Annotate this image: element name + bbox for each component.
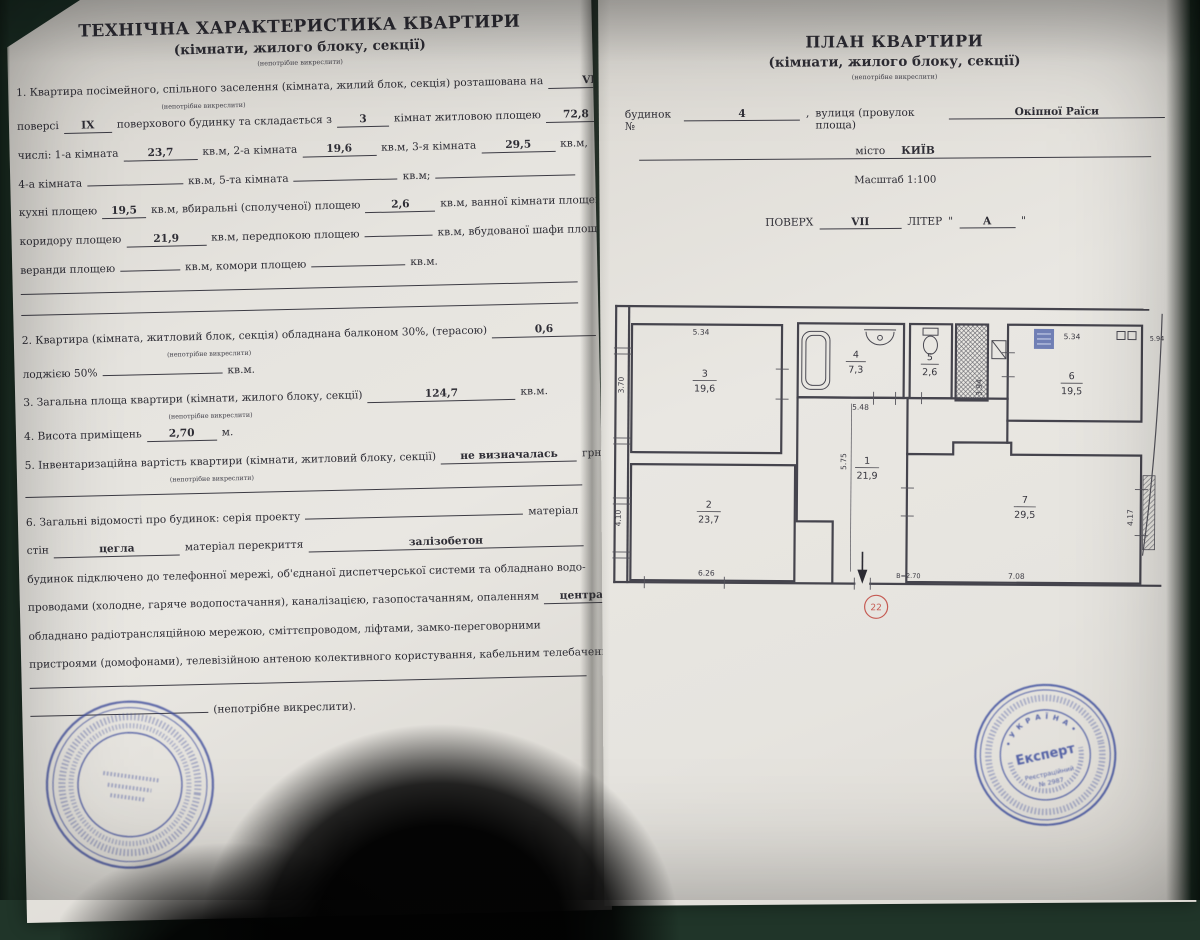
dimension-label: 3.94 [975, 379, 984, 396]
svg-text:29,5: 29,5 [1014, 510, 1035, 521]
form-rule-line [21, 281, 578, 296]
form-text: поверсі [17, 120, 59, 134]
form-value: 2,6 [365, 198, 435, 214]
door-number-badge: 22 [865, 595, 888, 618]
bathtub-icon [802, 331, 830, 389]
form-value [87, 184, 183, 187]
form-line: пристроями (домофонами), телевізійною ан… [29, 647, 586, 673]
vent-box-icon [992, 341, 1006, 359]
form-text: кухні площею [19, 206, 97, 221]
entrance-arrow-icon [857, 552, 867, 584]
form-text: кв.м. [410, 256, 438, 270]
svg-text:19,5: 19,5 [1061, 386, 1082, 397]
form-line: 6. Загальні відомості про будинок: серія… [26, 505, 583, 531]
form-value: 19,5 [102, 204, 146, 219]
close-quote: " [1021, 215, 1026, 227]
dimension-label: 3.70 [617, 376, 626, 393]
dimension-label: 4.10 [614, 509, 623, 526]
form-text: коридору площею [19, 234, 121, 249]
city-value: КИЇВ [901, 145, 935, 157]
stove-icon [1117, 331, 1136, 339]
form-text: 4. Висота приміщень [24, 429, 142, 445]
right-page: ПЛАН КВАРТИРИ (кімнати, жилого блоку, се… [598, 0, 1196, 906]
dimension-label: 7.08 [1008, 572, 1025, 581]
walls [614, 306, 1162, 586]
form-text: кв.м; [403, 170, 431, 184]
svg-text:3: 3 [702, 369, 708, 380]
strike-note: (непотрібне викреслити) [599, 71, 1191, 83]
liter-label: ЛІТЕР [907, 216, 942, 228]
form-text: проводами (холодне, гаряче водопостачанн… [28, 591, 539, 616]
svg-text:22: 22 [870, 603, 882, 613]
dimension-label: 5.34 [693, 328, 710, 337]
page-curl-edge [1166, 0, 1200, 900]
form-value: 21,9 [126, 232, 206, 248]
dimension-label: 5.48 [852, 403, 869, 412]
form-text: кв.м, передпокою площею [211, 229, 360, 245]
balcony-hatch [1143, 476, 1156, 550]
street-label: вулиця (провулок площа) [815, 107, 943, 132]
form-line: проводами (холодне, гаряче водопостачанн… [28, 590, 585, 617]
form-value: не визначалась [441, 448, 577, 465]
photo-left-edge [0, 0, 10, 900]
room-label: 52,6 [921, 352, 939, 378]
form-text: числі: 1-а кімната [18, 148, 119, 163]
room-labels: 121,9 223,7 319,6 47,3 52,6 619,5 729,5 [692, 349, 1083, 529]
svg-text:21,9: 21,9 [856, 471, 877, 482]
floor-label: ПОВЕРХ [765, 217, 813, 229]
form-text: кв.м. [227, 364, 255, 378]
form-rule-line [21, 302, 578, 317]
opening-ticks [612, 348, 1149, 592]
form-value [311, 265, 405, 268]
form-value [103, 373, 223, 377]
form-value [294, 179, 398, 182]
form-text: лоджією 50% [23, 368, 98, 383]
svg-text:19,6: 19,6 [694, 384, 715, 395]
form-text: кімнат житловою площею [394, 109, 541, 125]
form-text: 4-а кімната [18, 178, 82, 192]
form-value: залізобетон [308, 533, 583, 553]
form-value [120, 270, 180, 272]
form-value: 23,7 [123, 146, 197, 162]
liter-value: А [959, 215, 1015, 228]
form-text: матеріал [528, 505, 578, 519]
form-text: кв.м, комори площею [185, 259, 307, 275]
form-value: цегла [54, 542, 180, 559]
svg-text:4: 4 [853, 350, 859, 361]
form-line: обладнано радіотрансляційною мережою, см… [28, 619, 585, 645]
form-line: будинок підключено до телефонної мережі,… [27, 562, 584, 588]
form-value: 2,70 [147, 427, 217, 443]
svg-text:5: 5 [927, 352, 933, 363]
city-row: місто КИЇВ [639, 143, 1151, 161]
height-note: В=2.70 [896, 572, 920, 580]
room-label: 47,3 [846, 350, 866, 376]
room-label: 223,7 [697, 500, 721, 526]
form-text: кв.м. [520, 385, 548, 399]
svg-text:23,7: 23,7 [698, 515, 719, 526]
form-value: 124,7 [367, 386, 515, 403]
floor-value: VII [819, 216, 901, 230]
form-text: кв.м, 5-та кімната [188, 173, 289, 188]
hall-dim-line [850, 404, 851, 572]
form-text: обладнано радіотрансляційною мережою, см… [28, 620, 540, 645]
page-fold-shadow [580, 0, 610, 900]
comma: , [806, 108, 809, 120]
form-line: стінцегламатеріал перекриттязалізобетон [26, 533, 583, 560]
room-label: 619,5 [1061, 371, 1083, 397]
form-value: 19,6 [302, 142, 376, 158]
form-text: будинок підключено до телефонної мережі,… [27, 562, 586, 588]
form-value: 29,5 [481, 138, 555, 154]
svg-text:7,3: 7,3 [848, 365, 863, 376]
room-label: 729,5 [1014, 495, 1036, 521]
left-title-block: ТЕХНІЧНА ХАРАКТЕРИСТИКА КВАРТИРИ (кімнат… [7, 10, 593, 74]
form-text: поверхового будинку та складається з [117, 114, 332, 132]
toilet-icon [923, 328, 938, 354]
dimension-label: 5.34 [1064, 332, 1081, 341]
right-title-block: ПЛАН КВАРТИРИ (кімнати, жилого блоку, се… [598, 30, 1190, 83]
plan-subtitle: (кімнати, жилого блоку, секції) [598, 52, 1190, 73]
form-line: кухні площею19,5кв.м, вбиральні (сполуче… [19, 195, 576, 222]
form-text: матеріал перекриття [185, 539, 304, 555]
round-stamp-left [29, 683, 231, 885]
building-number-value: 4 [684, 108, 800, 122]
room-label: 319,6 [693, 369, 717, 395]
form-value: 3 [337, 113, 389, 128]
plan-title: ПЛАН КВАРТИРИ [598, 30, 1190, 54]
svg-text:7: 7 [1022, 495, 1028, 506]
form-lines: 1. Квартира посімейного, спільного засел… [16, 75, 587, 721]
building-number-label: будинок № [625, 108, 678, 132]
svg-text:2: 2 [706, 500, 712, 511]
form-text: кв.м, 2-а кімната [202, 144, 297, 159]
left-page: ТЕХНІЧНА ХАРАКТЕРИСТИКА КВАРТИРИ (кімнат… [6, 0, 612, 923]
form-line: 4-а кімнатакв.м, 5-та кімнатакв.м; [18, 167, 575, 193]
svg-text:2,6: 2,6 [922, 367, 937, 378]
form-line: числі: 1-а кімната23,7кв.м, 2-а кімната1… [18, 138, 575, 165]
photographed-document: { "left_page": { "title": "ТЕХНІЧНА ХАРА… [0, 0, 1200, 900]
form-text: стін [26, 545, 49, 559]
form-line: коридору площею21,9кв.м, передпокою площ… [19, 224, 576, 251]
blue-ink-mark [1034, 329, 1054, 349]
form-value [305, 514, 523, 520]
svg-text:6: 6 [1069, 371, 1075, 382]
street-value: Окіпної Раїси [949, 105, 1165, 120]
form-line: веранди площеюкв.м, комори площеюкв.м. [20, 253, 577, 279]
form-text: 6. Загальні відомості про будинок: серія… [26, 511, 301, 530]
city-label: місто [855, 145, 885, 157]
open-quote: " [948, 216, 953, 228]
form-text: кв.м, вбиральні (сполученої) площею [151, 200, 361, 218]
form-value [435, 175, 575, 179]
scale-row: Масштаб 1:100 [625, 173, 1165, 188]
form-text: кв.м, 3-я кімната [381, 140, 476, 155]
dimension-label: 6.26 [698, 569, 715, 578]
scale-label: Масштаб 1:100 [854, 175, 936, 187]
sink-icon [864, 330, 896, 345]
svg-text:1: 1 [864, 456, 870, 467]
form-text: веранди площею [20, 263, 115, 278]
form-text: м. [222, 426, 234, 439]
expert-stamp: • У К Р А Ї Н А • Експерт Реєстраційний … [956, 666, 1135, 845]
room-label: 121,9 [855, 456, 879, 482]
dimension-label: 5.75 [839, 453, 848, 470]
form-value: IX [64, 119, 112, 134]
form-value [365, 235, 433, 238]
building-street-row: будинок № 4 , вулиця (провулок площа) Ок… [625, 105, 1165, 133]
floor-liter-row: ПОВЕРХ VII ЛІТЕР " А " [626, 214, 1166, 231]
form-text: пристроями (домофонами), телевізійною ан… [29, 646, 612, 672]
dimension-label: 4.17 [1126, 509, 1135, 526]
floor-plan: 121,9 223,7 319,6 47,3 52,6 619,5 729,5 … [604, 290, 1186, 644]
form-text: (непотрібне викреслити). [213, 701, 356, 717]
dimension-label: 5.94 [1150, 335, 1165, 343]
form-rule-line [30, 675, 587, 690]
